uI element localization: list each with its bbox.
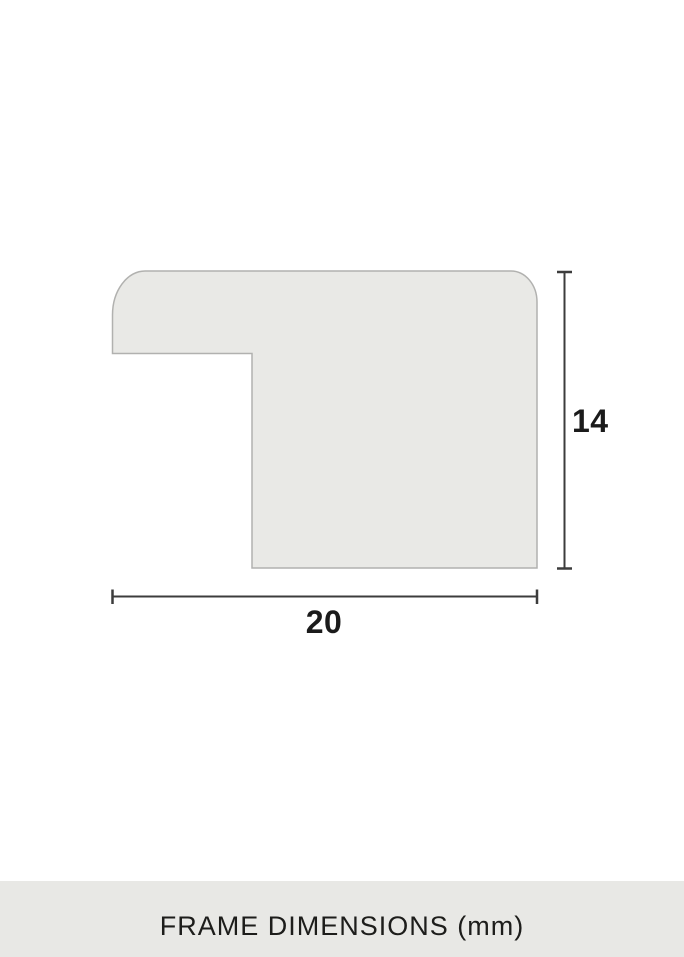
diagram-canvas: 14 20	[0, 0, 684, 881]
width-dimension-label: 20	[306, 604, 343, 640]
footer-caption-text: FRAME DIMENSIONS (mm)	[160, 913, 525, 940]
frame-profile-shape	[113, 271, 538, 568]
frame-dimensions-page: 14 20 FRAME DIMENSIONS (mm)	[0, 0, 684, 957]
height-dimension-label: 14	[572, 403, 609, 439]
footer-caption-bar: FRAME DIMENSIONS (mm)	[0, 881, 684, 957]
dimension-diagram: 14 20	[0, 0, 684, 881]
